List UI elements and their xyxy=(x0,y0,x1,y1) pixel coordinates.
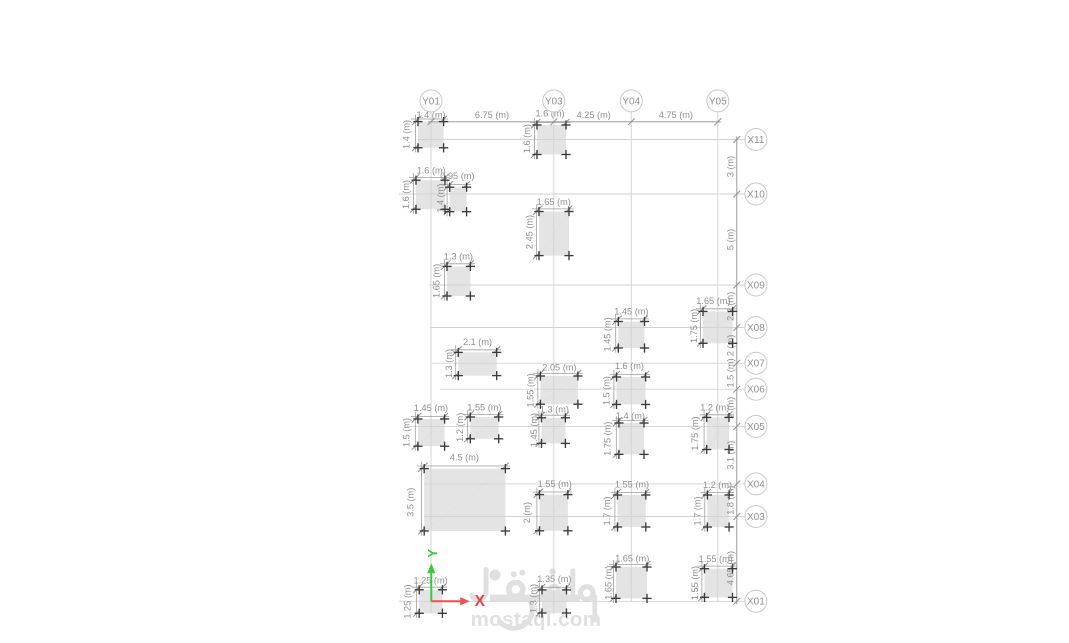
svg-text:1.65 (m): 1.65 (m) xyxy=(615,554,649,564)
svg-text:1.4 (m): 1.4 (m) xyxy=(435,184,445,213)
svg-text:X06: X06 xyxy=(747,385,765,396)
svg-text:2.2 (m): 2.2 (m) xyxy=(725,292,735,321)
svg-text:X04: X04 xyxy=(747,479,765,490)
svg-text:1.55 (m): 1.55 (m) xyxy=(467,403,501,413)
svg-text:4.65 (m): 4.65 (m) xyxy=(725,551,735,585)
svg-text:4.25 (m): 4.25 (m) xyxy=(577,110,611,120)
svg-text:1.75 (m): 1.75 (m) xyxy=(690,416,700,450)
svg-text:1.55 (m): 1.55 (m) xyxy=(615,480,649,490)
svg-text:1.25 (m): 1.25 (m) xyxy=(402,584,412,618)
svg-text:3.5 (m): 3.5 (m) xyxy=(406,488,416,517)
svg-text:1.3 (m): 1.3 (m) xyxy=(444,349,454,378)
svg-text:4.5 (m): 4.5 (m) xyxy=(450,453,479,463)
svg-text:2 (m): 2 (m) xyxy=(522,502,532,523)
svg-text:2.05 (m): 2.05 (m) xyxy=(542,363,576,373)
svg-text:2.1 (m): 2.1 (m) xyxy=(463,337,492,347)
svg-text:1.5 (m): 1.5 (m) xyxy=(725,358,735,387)
svg-text:1.45 (m): 1.45 (m) xyxy=(414,403,448,413)
svg-text:Y04: Y04 xyxy=(622,96,640,107)
svg-text:1.3 (m): 1.3 (m) xyxy=(540,405,569,415)
svg-text:1.45 (m): 1.45 (m) xyxy=(602,317,612,351)
svg-text:1.55 (m): 1.55 (m) xyxy=(538,479,572,489)
svg-text:1.35 (m): 1.35 (m) xyxy=(537,574,571,584)
svg-text:X: X xyxy=(475,593,486,610)
svg-text:1.55 (m): 1.55 (m) xyxy=(526,373,536,407)
svg-text:4.75 (m): 4.75 (m) xyxy=(659,110,693,120)
svg-text:X03: X03 xyxy=(747,512,765,523)
svg-text:X09: X09 xyxy=(747,280,765,291)
svg-text:1.3 (m): 1.3 (m) xyxy=(444,252,473,262)
svg-text:X08: X08 xyxy=(747,323,765,334)
svg-text:1.75 (m): 1.75 (m) xyxy=(689,309,699,343)
svg-text:1.55 (m): 1.55 (m) xyxy=(690,566,700,600)
svg-text:6.75 (m): 6.75 (m) xyxy=(475,110,509,120)
svg-text:1.45 (m): 1.45 (m) xyxy=(614,307,648,317)
svg-text:1.6 (m): 1.6 (m) xyxy=(401,180,411,209)
svg-text:1.7 (m): 1.7 (m) xyxy=(693,496,703,525)
svg-text:1.4 (m): 1.4 (m) xyxy=(401,120,411,149)
svg-text:Y01: Y01 xyxy=(422,96,440,107)
svg-text:X01: X01 xyxy=(747,597,765,608)
svg-text:X05: X05 xyxy=(747,422,765,433)
svg-text:3.1 (m): 3.1 (m) xyxy=(725,441,735,470)
svg-text:1.75 (m): 1.75 (m) xyxy=(602,422,612,456)
svg-text:1.6 (m): 1.6 (m) xyxy=(615,361,644,371)
svg-text:1.8 (m): 1.8 (m) xyxy=(725,486,735,515)
svg-text:1.65 (m): 1.65 (m) xyxy=(431,264,441,298)
svg-text:1.6 (m): 1.6 (m) xyxy=(522,124,532,153)
svg-text:1.7 (m): 1.7 (m) xyxy=(602,496,612,525)
svg-text:X07: X07 xyxy=(747,359,765,370)
svg-text:X10: X10 xyxy=(747,189,765,200)
svg-text:3 (m): 3 (m) xyxy=(725,156,735,177)
svg-text:2.45 (m): 2.45 (m) xyxy=(525,215,535,249)
svg-text:1.5 (m): 1.5 (m) xyxy=(601,376,611,405)
svg-text:2 (m): 2 (m) xyxy=(725,335,735,356)
svg-text:1.65 (m): 1.65 (m) xyxy=(603,566,613,600)
svg-text:X11: X11 xyxy=(747,135,764,146)
svg-text:Y: Y xyxy=(425,549,440,558)
svg-text:5 (m): 5 (m) xyxy=(725,229,735,250)
svg-text:Y03: Y03 xyxy=(545,96,563,107)
svg-text:1.4 (m): 1.4 (m) xyxy=(616,411,645,421)
svg-text:Y05: Y05 xyxy=(709,96,727,107)
svg-text:1.5 (m): 1.5 (m) xyxy=(402,418,412,447)
svg-text:2 (m): 2 (m) xyxy=(725,397,735,418)
svg-text:1.3 (m): 1.3 (m) xyxy=(528,584,538,613)
svg-text:1.65 (m): 1.65 (m) xyxy=(537,197,571,207)
svg-text:1.2 (m): 1.2 (m) xyxy=(455,413,465,442)
